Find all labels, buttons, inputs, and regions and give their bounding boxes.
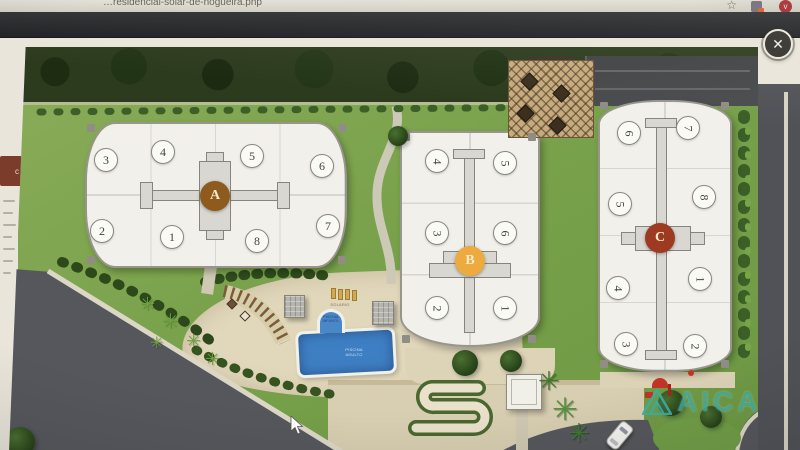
building-a-core-end [277, 182, 290, 209]
sun-lounger [331, 288, 336, 299]
aica-wordmark: AICA [677, 386, 761, 418]
aica-logo-icon [642, 389, 672, 415]
side-text-line [3, 260, 13, 262]
shrub-icon: ✳ [186, 332, 201, 350]
corner-tab [87, 124, 95, 132]
palm-tree-icon: ✳ [568, 420, 590, 446]
unit-circle-c8: 8 [692, 185, 716, 209]
side-text-line [3, 224, 16, 226]
building-c-core-wing [621, 232, 636, 245]
pavilion-table [552, 84, 570, 102]
unit-circle-b1: 1 [493, 296, 517, 320]
pavilion-sign [528, 56, 574, 59]
building-a-core-tab [206, 152, 224, 162]
unit-circle-c7: 7 [676, 116, 700, 140]
sun-lounger [345, 289, 350, 300]
unit-circle-a6: 6 [310, 154, 334, 178]
url-text[interactable]: …residencial-solar-de-nogueira.php [103, 0, 262, 8]
extension-icon[interactable] [751, 1, 762, 12]
side-text-line [3, 236, 12, 238]
unit-circle-c3: 3 [614, 332, 638, 356]
building-b-corridor [464, 157, 475, 333]
corner-tab [721, 360, 729, 368]
unit-circle-b3: 3 [425, 221, 449, 245]
sun-lounger [352, 290, 357, 301]
unit-circle-a8: 8 [245, 229, 269, 253]
corner-tab [87, 256, 95, 264]
side-page-tab[interactable]: c [0, 156, 22, 186]
building-b-badge: B [455, 246, 485, 276]
guard-house [506, 374, 542, 410]
unit-circle-a4: 4 [151, 140, 175, 164]
building-b-core-tab [453, 149, 485, 159]
side-text-line [3, 212, 13, 214]
side-text-line [3, 248, 15, 250]
top-bush-row [40, 107, 575, 112]
mouse-cursor [290, 416, 304, 436]
unit-circle-c5: 5 [608, 192, 632, 216]
tree-icon [388, 126, 408, 146]
side-text-line [3, 200, 15, 202]
deck-label: SOLARIO [318, 302, 362, 307]
unit-circle-b4: 4 [425, 149, 449, 173]
unit-circle-a3: 3 [94, 148, 118, 172]
corner-tab [338, 124, 346, 132]
building-c-core-wing [690, 232, 705, 245]
bookmark-star-icon[interactable]: ☆ [726, 0, 737, 12]
side-text-line [3, 272, 11, 274]
building-c-core-tab [645, 350, 677, 360]
tree-icon [452, 350, 478, 376]
unit-circle-b5: 5 [493, 151, 517, 175]
corner-tab [721, 102, 729, 110]
unit-circle-c1: 1 [688, 267, 712, 291]
tree-icon [500, 350, 522, 372]
shrub-icon: ✳ [140, 295, 155, 313]
unit-circle-c6: 6 [617, 121, 641, 145]
building-c-core-tab [645, 118, 677, 128]
pavilion-table [520, 72, 538, 90]
car-rear-window [609, 438, 618, 447]
unit-circle-a7: 7 [316, 214, 340, 238]
unit-circle-c2: 2 [683, 334, 707, 358]
unit-circle-a1: 1 [160, 225, 184, 249]
guard-path [516, 408, 528, 450]
pergola [372, 301, 394, 325]
guard-house-roof [511, 379, 537, 405]
shrub-icon: ✳ [162, 312, 179, 332]
building-a-core-tab [206, 230, 224, 240]
shrub-icon: ✳ [150, 336, 163, 352]
lattice-pavilion [508, 60, 594, 138]
browser-toolbar: …residencial-solar-de-nogueira.php ☆ v [0, 0, 800, 12]
building-a-badge: A [200, 181, 230, 211]
building-c-badge: C [645, 223, 675, 253]
unit-circle-b2: 2 [425, 296, 449, 320]
right-road [758, 84, 800, 450]
corner-tab [600, 102, 608, 110]
adult-pool-label: PISCINAADULTO [334, 347, 374, 357]
corner-tab [528, 133, 536, 141]
corner-tab [338, 256, 346, 264]
car-windshield [619, 426, 628, 435]
unit-circle-a5: 5 [240, 144, 264, 168]
profile-avatar[interactable]: v [779, 0, 792, 12]
shrub-icon: ✳ [205, 350, 220, 368]
right-road-curb [784, 92, 788, 450]
aica-watermark: AICA [642, 386, 761, 418]
infant-pool-label: PISCINAINFANTIL [317, 315, 345, 324]
corner-tab [402, 335, 410, 343]
close-button[interactable]: ✕ [763, 29, 793, 59]
playground-top [688, 370, 694, 376]
pavilion-table [516, 104, 534, 122]
corner-tab [528, 335, 536, 343]
building-a-core-end [140, 182, 153, 209]
sun-lounger [338, 289, 343, 300]
photographed-screen: A 3 4 5 6 2 1 8 7 B 4 5 3 6 2 1 C 6 7 5 … [0, 0, 800, 450]
lightbox-top-bar [0, 12, 800, 38]
unit-circle-b6: 6 [493, 221, 517, 245]
pergola [284, 295, 305, 318]
corner-tab [600, 360, 608, 368]
building-a-path [201, 265, 217, 294]
unit-circle-c4: 4 [606, 276, 630, 300]
unit-circle-a2: 2 [90, 219, 114, 243]
green-island [653, 418, 741, 450]
hedge-deck-top [205, 273, 330, 282]
palm-tree-icon: ✳ [538, 368, 560, 394]
pavilion-table [548, 116, 566, 134]
